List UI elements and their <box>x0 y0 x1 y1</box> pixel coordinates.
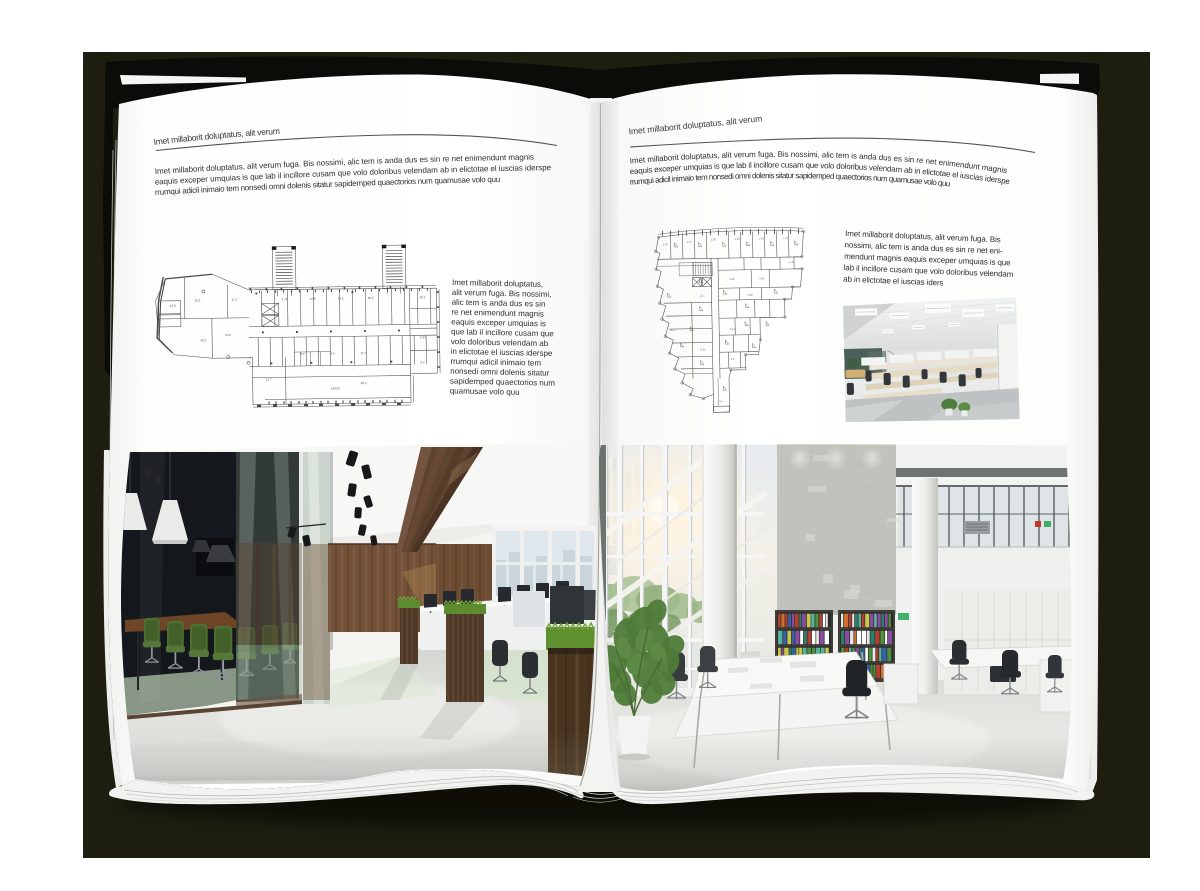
svg-text:5.66: 5.66 <box>729 277 735 281</box>
svg-text:6.2: 6.2 <box>731 357 735 361</box>
svg-text:3.5: 3.5 <box>719 399 723 403</box>
svg-text:28.1: 28.1 <box>420 295 426 299</box>
svg-text:2.76: 2.76 <box>282 297 288 301</box>
svg-text:1.30: 1.30 <box>735 237 741 241</box>
svg-text:37.7: 37.7 <box>232 298 238 302</box>
svg-text:45.2: 45.2 <box>670 328 676 332</box>
svg-text:8.2: 8.2 <box>300 352 305 356</box>
svg-text:40.3: 40.3 <box>200 338 206 342</box>
svg-text:30.2: 30.2 <box>195 298 201 302</box>
svg-text:12.6: 12.6 <box>170 304 176 308</box>
svg-text:15.6: 15.6 <box>338 296 344 300</box>
svg-text:5.54: 5.54 <box>420 335 426 339</box>
svg-text:9.2: 9.2 <box>420 360 425 364</box>
svg-text:2.48: 2.48 <box>748 293 754 297</box>
svg-text:4.4: 4.4 <box>330 352 335 356</box>
svg-text:12.1: 12.1 <box>700 293 706 297</box>
svg-text:11.7: 11.7 <box>360 351 366 355</box>
svg-text:13.6: 13.6 <box>225 333 231 337</box>
svg-text:30.5: 30.5 <box>368 296 374 300</box>
svg-text:8.35: 8.35 <box>700 347 706 351</box>
svg-text:1.08: 1.08 <box>759 236 765 240</box>
svg-text:10.9: 10.9 <box>730 327 736 331</box>
svg-text:140.02: 140.02 <box>331 386 341 390</box>
svg-text:46.3: 46.3 <box>361 381 367 385</box>
svg-text:1.38: 1.38 <box>711 237 717 241</box>
svg-text:21.7: 21.7 <box>266 377 272 381</box>
svg-text:12.8: 12.8 <box>310 297 316 301</box>
svg-text:quamusae volo quu: quamusae volo quu <box>450 386 520 396</box>
svg-text:3.36: 3.36 <box>759 276 765 280</box>
svg-text:1.78: 1.78 <box>783 236 789 240</box>
svg-text:1.55: 1.55 <box>687 240 693 244</box>
svg-text:1.45: 1.45 <box>789 260 795 264</box>
svg-text:1.16: 1.16 <box>663 242 669 246</box>
